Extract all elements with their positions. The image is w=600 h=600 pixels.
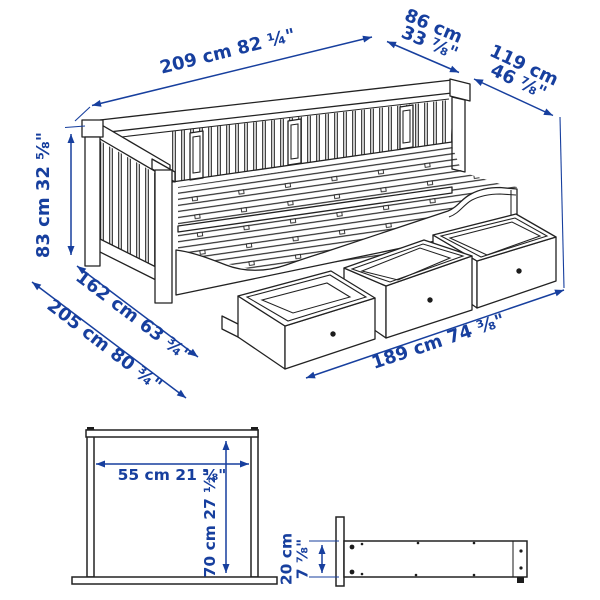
dim-205-label: 205 cm 80 ¾" [43,295,166,396]
frame-top-bar [86,430,258,437]
drawer-1-knob [330,331,335,336]
dim-209-tail [75,107,90,121]
rail-body [344,541,527,577]
dim-119-extension [560,117,564,288]
dim-86-label: 86 cm 33 ⅞" [395,5,468,65]
frame-left-leg [87,430,94,577]
svg-text:7 ⅞": 7 ⅞" [294,539,312,579]
drawer-2-knob [427,297,432,302]
back-flat-board-2 [288,119,301,165]
drawer-3-knob [516,268,521,273]
back-flat-board-1 [190,131,203,180]
left-post-cap [82,120,103,137]
left-post [85,137,100,266]
dim-83-label: 83 cm 32 ⅝" [33,132,54,258]
dim-209-label: 209 cm 82 ¼" [158,25,298,79]
rail-foot [517,577,524,583]
frame-right-leg [251,430,258,577]
back-flat-board-3 [400,105,413,149]
rail-end-plate [336,517,344,586]
side-rail-profile-view: 20 cm 7 ⅞" [278,517,528,586]
drawer-1 [238,271,375,369]
front-left-post [155,170,172,303]
clearance-frame-view: 55 cm 21 ⅝" 70 cm 27 ½" [72,427,277,584]
dim-20-label: 20 cm 7 ⅞" [278,533,312,585]
dim-119-label: 119 cm 46 ⅞" [479,41,561,106]
dimension-diagram: 209 cm 82 ¼" 86 cm 33 ⅞" 119 cm 46 ⅞" 83… [0,0,600,600]
dim-70-label: 70 cm 27 ½" [201,469,219,578]
frame-base-plate [72,577,277,584]
